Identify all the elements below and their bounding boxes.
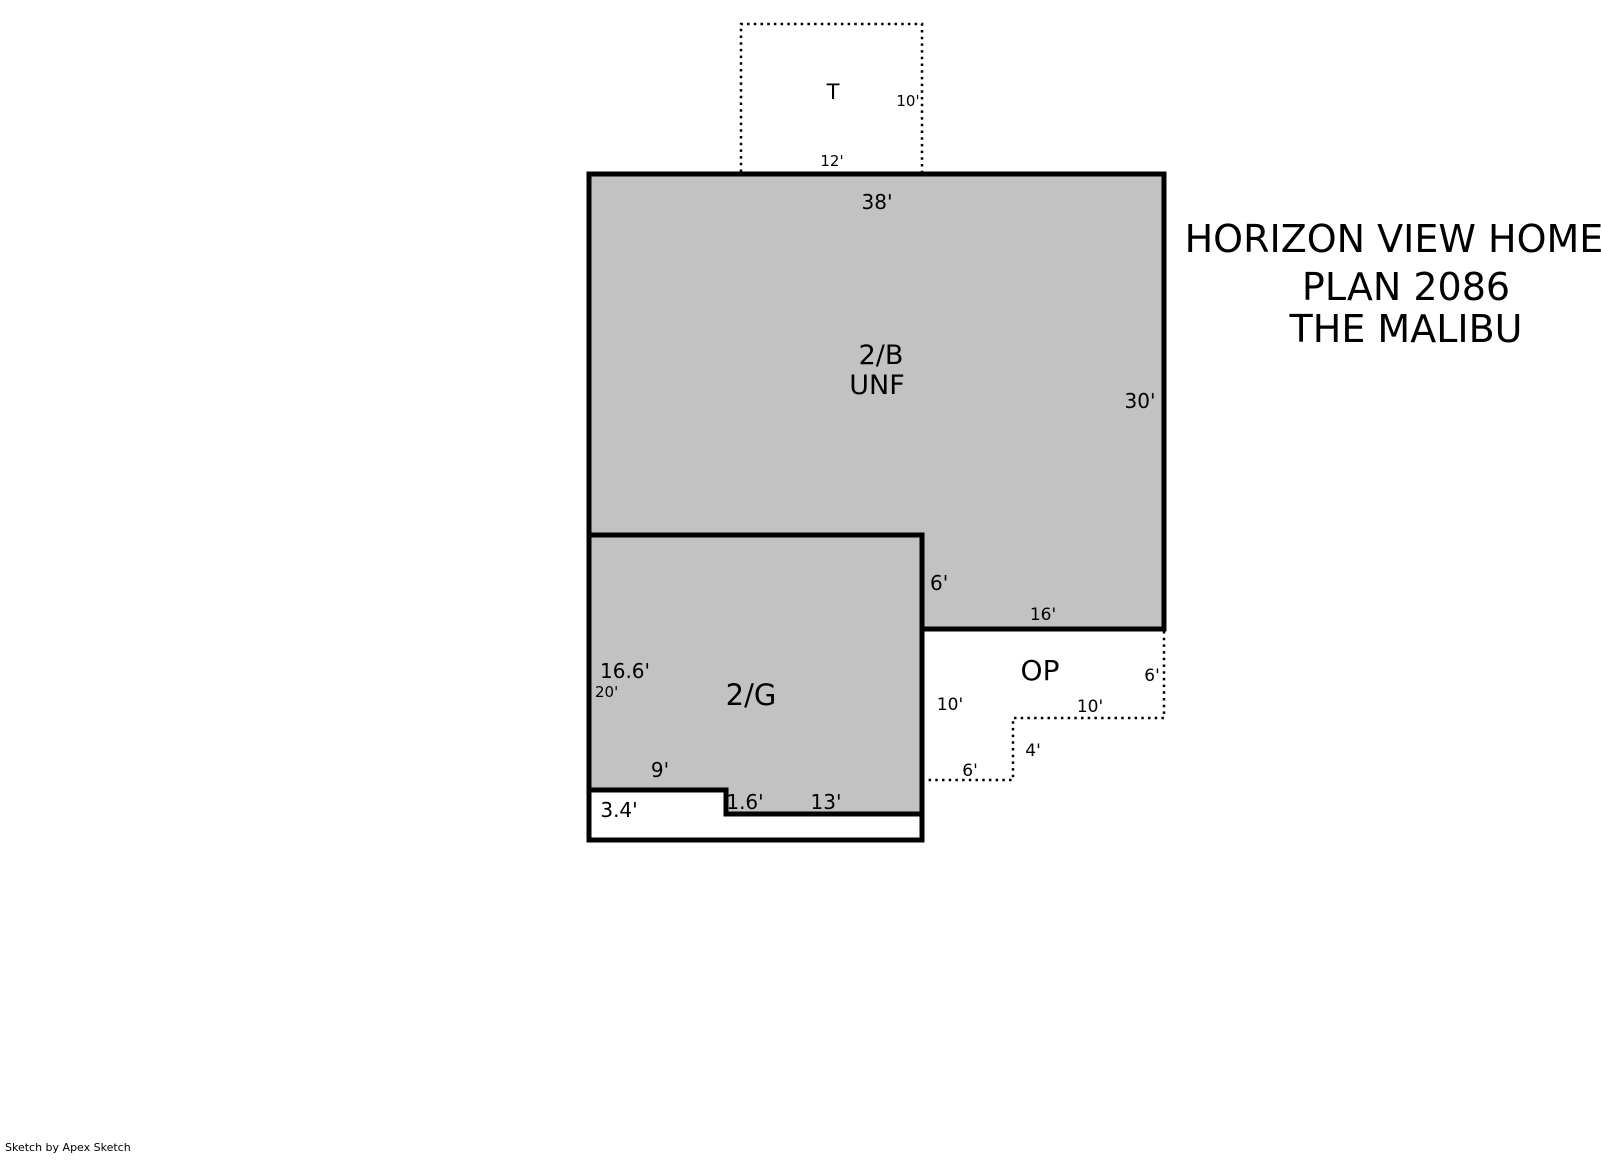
dim-garage-bottom: 13' bbox=[811, 790, 842, 814]
dim-porch-left: 10' bbox=[937, 695, 963, 715]
dim-garage-left-overall: 20' bbox=[595, 683, 618, 701]
basement-sublabel: UNF bbox=[849, 370, 905, 401]
title-line-3: THE MALIBU bbox=[1289, 307, 1523, 351]
dim-porch-top: 16' bbox=[1030, 605, 1056, 625]
dim-terrace-right: 10' bbox=[896, 92, 919, 110]
dim-garage-step: 1.6' bbox=[726, 790, 763, 814]
dim-terrace-bottom: 12' bbox=[820, 152, 843, 170]
dim-basement-right: 30' bbox=[1125, 389, 1156, 413]
terrace-label: T bbox=[826, 80, 840, 104]
garage-label: 2/G bbox=[726, 678, 777, 712]
sketch-credit: Sketch by Apex Sketch bbox=[5, 1141, 131, 1154]
dim-porch-bottom: 6' bbox=[962, 761, 978, 781]
dim-garage-notch-height: 3.4' bbox=[600, 798, 637, 822]
dim-porch-step: 4' bbox=[1025, 741, 1041, 761]
floor-plan-sketch: T 2/B UNF 2/G OP 10' 12' 38' 30' 6' 16.6… bbox=[0, 0, 1601, 1174]
dim-porch-right: 6' bbox=[1144, 666, 1160, 686]
dim-garage-notch-top: 9' bbox=[651, 758, 669, 782]
open-porch-label: OP bbox=[1021, 654, 1060, 687]
dim-garage-left-interior: 16.6' bbox=[600, 659, 650, 683]
floor-plan-canvas: T 2/B UNF 2/G OP 10' 12' 38' 30' 6' 16.6… bbox=[0, 0, 1601, 1174]
dim-garage-right-upper: 6' bbox=[930, 571, 948, 595]
title-line-1: HORIZON VIEW HOMES bbox=[1185, 217, 1601, 261]
dim-basement-top: 38' bbox=[862, 190, 893, 214]
title-line-2: PLAN 2086 bbox=[1302, 265, 1510, 309]
dim-porch-mid: 10' bbox=[1077, 697, 1103, 717]
basement-label: 2/B bbox=[859, 340, 904, 371]
